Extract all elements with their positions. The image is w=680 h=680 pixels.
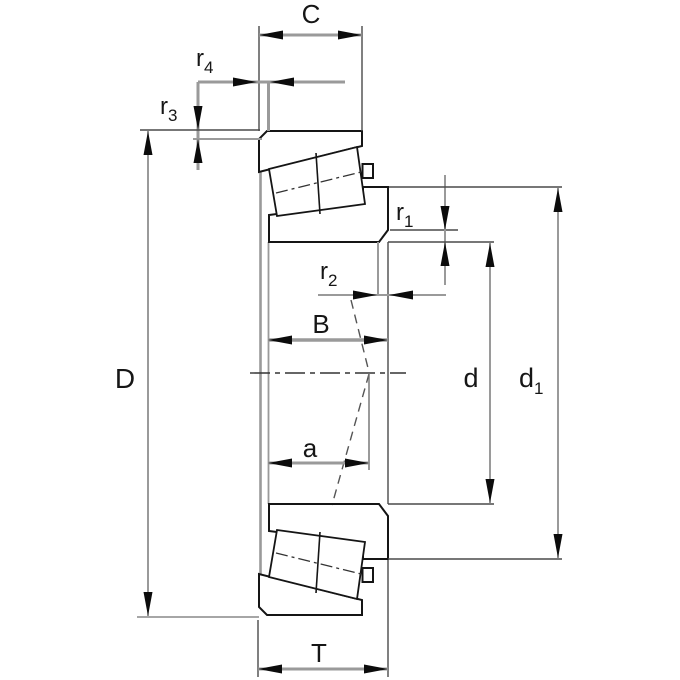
dimension-T: T bbox=[258, 620, 388, 677]
dimension-r4: r4 bbox=[196, 45, 345, 170]
label-r2: r2 bbox=[320, 258, 337, 290]
drawing-canvas: C r4 r3 D r1 r2 bbox=[0, 0, 680, 680]
bearing-section-bottom bbox=[259, 504, 388, 615]
label-T: T bbox=[311, 638, 327, 668]
roller-nose-bottom bbox=[363, 568, 374, 582]
label-r4: r4 bbox=[196, 45, 213, 77]
label-a: a bbox=[303, 433, 318, 463]
label-d1: d1 bbox=[519, 363, 544, 398]
label-B: B bbox=[312, 309, 329, 339]
label-D: D bbox=[115, 363, 135, 394]
label-d: d bbox=[463, 363, 478, 393]
dimension-r1: r1 bbox=[390, 175, 458, 285]
label-C: C bbox=[302, 0, 321, 29]
dimension-C: C bbox=[259, 0, 362, 131]
roller-nose-top bbox=[363, 164, 374, 178]
dimension-B: B bbox=[268, 309, 388, 345]
bearing-dimension-drawing: C r4 r3 D r1 r2 bbox=[0, 0, 680, 680]
pressure-lines bbox=[332, 300, 369, 505]
dimension-r2: r2 bbox=[318, 242, 446, 300]
dimension-r3: r3 bbox=[160, 93, 262, 163]
label-r3: r3 bbox=[160, 93, 177, 125]
bearing-section-top bbox=[259, 131, 388, 242]
dimension-D: D bbox=[115, 130, 260, 617]
dimension-a: a bbox=[268, 433, 369, 468]
label-r1: r1 bbox=[396, 199, 413, 231]
